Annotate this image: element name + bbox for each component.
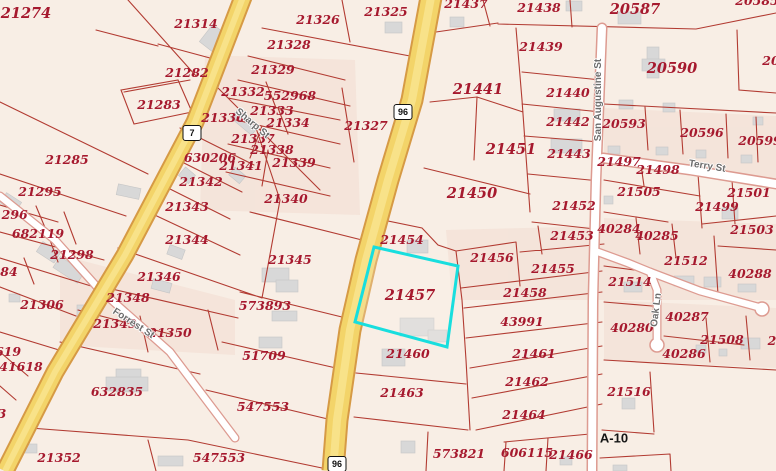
highway-shield-96: 96 [328, 456, 347, 471]
highway-shield-96: 96 [394, 104, 413, 120]
map-canvas [0, 0, 776, 471]
survey-label-a10: A-10 [600, 432, 628, 445]
highways [5, 0, 432, 471]
highlighted-parcel-21457[interactable] [355, 247, 458, 347]
highway-shield-7: 7 [183, 125, 202, 141]
street-label-san-augustine-st: San Augustine St [594, 59, 604, 141]
parcel-map[interactable]: 2127421314213262132521437214382058720585… [0, 0, 776, 471]
